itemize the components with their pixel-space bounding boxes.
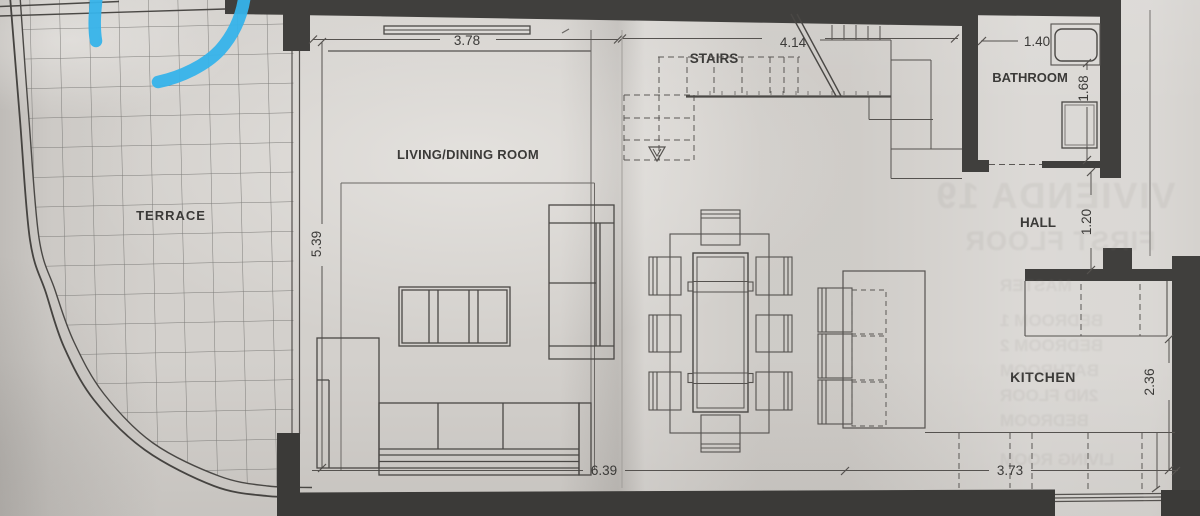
svg-text:LIVING/DINING ROOM: LIVING/DINING ROOM	[397, 147, 539, 162]
svg-text:3.78: 3.78	[454, 33, 480, 48]
svg-text:VIVIENDA 19: VIVIENDA 19	[935, 175, 1176, 216]
svg-text:6.39: 6.39	[591, 463, 617, 478]
svg-text:1.40: 1.40	[1024, 34, 1050, 49]
svg-text:BATHROOM: BATHROOM	[992, 70, 1068, 85]
svg-text:TERRACE: TERRACE	[136, 208, 206, 223]
svg-text:2ND FLOOR: 2ND FLOOR	[1000, 386, 1098, 405]
svg-text:BEDROOM 2: BEDROOM 2	[1000, 336, 1103, 355]
svg-text:LIVING ROOM: LIVING ROOM	[1000, 450, 1114, 469]
svg-text:1.68: 1.68	[1076, 75, 1091, 101]
svg-text:BEDROOM: BEDROOM	[1000, 411, 1089, 430]
svg-text:BATHROOM: BATHROOM	[1000, 361, 1099, 380]
svg-text:2.36: 2.36	[1141, 368, 1157, 395]
svg-text:5.39: 5.39	[309, 231, 324, 257]
svg-text:BEDROOM 1: BEDROOM 1	[1000, 311, 1103, 330]
svg-text:4.14: 4.14	[780, 35, 807, 50]
svg-text:FIRST FLOOR: FIRST FLOOR	[965, 226, 1156, 256]
svg-text:MASTER: MASTER	[1000, 276, 1072, 295]
